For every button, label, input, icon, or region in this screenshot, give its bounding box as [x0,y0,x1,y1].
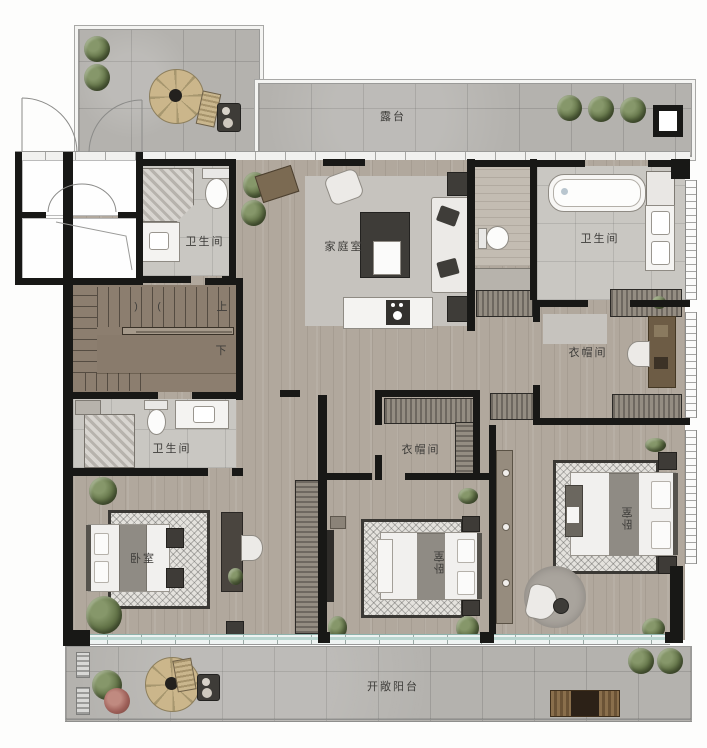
balcony-flower-icon [104,688,130,714]
stair-side-run [73,287,97,373]
bedroom-divider-wardrobe [496,450,513,624]
desk-item [654,357,668,369]
wall [473,160,585,167]
knob [502,579,510,587]
bedroom-left-plant-icon [89,477,117,505]
floor-plan: 露台 ) ( 上 下 卫生间 家庭室 [0,0,707,748]
pillow [457,539,475,563]
terrace-plant-icon [588,96,614,122]
bedroom-left-plant-icon [86,596,122,634]
toilet-icon [205,178,228,209]
cloakroom-mid-label: 衣帽间 [402,441,441,457]
wall [118,212,143,218]
desk-icon [648,316,676,388]
terrace-label: 露台 [380,108,406,124]
headboard [673,473,678,555]
bed-icon [380,532,480,600]
cloakroom-mid-wardrobe-top [384,398,475,424]
hall-cabinet [473,268,532,291]
towel [567,507,579,523]
desk-item [654,325,668,337]
family-plant-icon [241,200,266,226]
bottom-window-band [73,634,670,645]
wall [323,159,365,166]
nightstand-icon [462,516,480,532]
terrace-plant-icon [84,36,110,62]
side-window [685,180,697,300]
shelf-icon [330,516,346,529]
wall [136,159,236,166]
wall [467,159,475,331]
sofa-icon [431,197,470,293]
pillow [651,521,671,549]
desk-plant-icon [228,568,243,585]
wall [375,455,382,480]
bathroom-top-right-label: 卫生间 [581,230,620,246]
wall [22,212,46,218]
wall [15,278,143,285]
wall [232,468,243,476]
wall [63,468,208,476]
wall [375,390,480,397]
pillow [94,561,109,583]
sofa-pillow-icon [436,258,459,279]
stair-arrow-right: ( [157,302,160,313]
terrace-plant-icon [557,95,582,121]
corridor-wardrobe [490,393,535,420]
wall [280,390,300,397]
bedroom-mid-plant-icon [458,488,478,504]
wall [533,300,540,322]
stair-landing-rail [122,327,234,335]
family-room-label: 家庭室 [325,238,364,254]
balcony-plant-icon [657,648,683,674]
stair-down-label: 下 [216,342,227,358]
bench-icon [550,690,620,717]
wall [236,278,243,400]
knob [502,523,510,531]
wall [533,418,690,425]
washer-icon [75,400,101,415]
pillow [651,481,671,509]
basin-icon [651,211,670,235]
wall [318,632,330,643]
toilet-icon [147,409,166,435]
parasol-center-icon [169,89,182,102]
elevator-lobby-upper [22,160,138,216]
elevator-lobby-lower [22,218,138,280]
side-table-icon [217,103,241,132]
cooktop-dot [399,303,403,307]
bedroom-right-plant-icon [645,438,666,452]
basin-icon [193,406,215,423]
nightstand-icon [166,528,184,548]
bathroom-top-left-label: 卫生间 [186,233,225,249]
wall [480,632,494,643]
nightstand-icon [166,568,184,588]
wall [533,300,588,307]
nightstand-icon [462,600,480,616]
side-table-icon [553,598,569,614]
cloakroom-right-rug [543,314,607,344]
balcony-louver-icon [76,687,90,715]
side-table-icon [197,674,220,701]
sofa-pillow-icon [436,205,460,227]
bathtub-icon [548,174,646,212]
cooktop-dial [393,311,402,320]
wc-floor [475,166,530,266]
stair-lower-run [85,373,147,391]
tray-icon [373,241,401,275]
kitchen-island-icon [343,297,433,329]
sink-vanity-icon [175,400,229,429]
hall-wardrobe [476,290,533,317]
foot-bench [377,539,393,593]
wall [63,392,158,399]
cloakroom-right-wardrobe-bottom [612,394,682,420]
headboard [86,525,91,591]
terrace-plant-icon [620,97,646,123]
desk-chair-icon [241,535,263,561]
bedroom-right-label: 卧室 [620,506,636,530]
wall [318,395,327,640]
balcony-louver-icon [76,652,90,678]
bedroom-mid-label: 卧室 [432,550,448,574]
bed-icon [88,524,170,592]
wall [375,390,382,425]
double-sink-vanity-icon [645,205,675,271]
side-window [685,430,697,564]
cloakroom-right-label: 衣帽间 [569,344,608,360]
wall [670,566,683,636]
wall [229,159,236,283]
wall [665,632,683,643]
stair-arrow-left: ) [134,302,137,313]
wc-toilet-icon [486,226,509,250]
cooktop-dot [391,303,395,307]
desk-chair-icon [627,341,650,367]
headboard [477,533,482,599]
wall [489,425,496,640]
wall [671,159,690,179]
tabletop-dot [223,118,233,128]
skylight-box-icon [653,105,683,137]
tv-panel-icon [327,530,334,602]
stair-upper-run [97,287,236,327]
knob [502,469,510,477]
tabletop-dot [202,678,210,686]
wall [530,159,537,300]
wall [192,392,243,399]
bathroom-mid-left-label: 卫生间 [153,440,192,456]
balcony-plant-icon [628,648,654,674]
wall [327,473,372,480]
shower-bench-icon [84,414,135,468]
terrace-plant-icon [84,64,110,91]
wall [63,630,90,646]
coffee-table-icon [360,212,410,278]
basin-icon [651,241,670,265]
tabletop-dot [222,107,230,115]
bench-cushion [571,691,599,716]
pillow [457,571,475,595]
wall [136,152,143,285]
wall [405,473,489,480]
wall [630,300,690,307]
bedroom-left-label: 卧室 [130,550,156,566]
wall [473,390,480,480]
bedroom-left-wardrobe [295,480,320,634]
stair-up-label: 上 [217,298,228,314]
nightstand-icon [658,452,677,470]
tabletop-dot [202,688,212,698]
pillow [94,533,109,555]
drain-icon [561,188,568,195]
wall [15,152,22,285]
open-balcony-label: 开敞阳台 [367,678,419,694]
sink-vanity-icon [140,222,180,262]
basin-icon [149,232,169,250]
wall [136,276,191,283]
side-window [685,312,697,418]
